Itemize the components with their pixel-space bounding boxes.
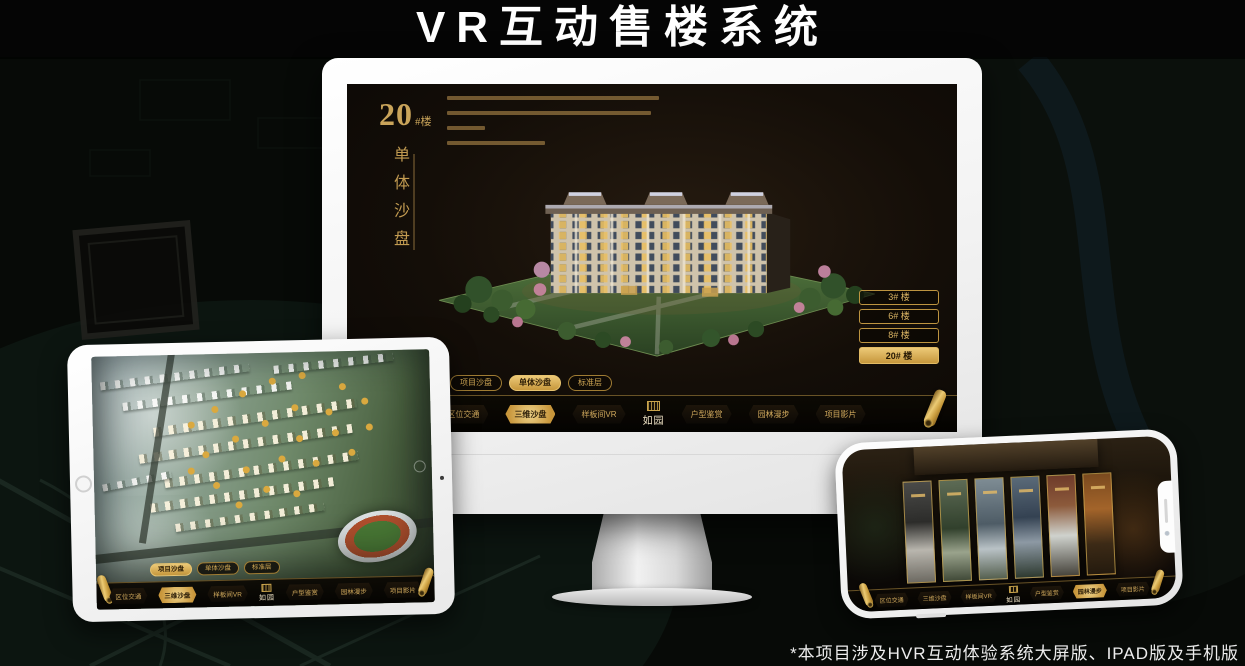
ipad-frame: 项目沙盘 单体沙盘 标准层 区位交通 三维沙盘 样板间VR 如园 户型鉴赏 园林… <box>67 337 455 623</box>
speaker-icon <box>1164 498 1168 522</box>
building-selector: 3# 楼 6# 楼 8# 楼 20# 楼 <box>859 290 939 364</box>
nav-3d-sandbox[interactable]: 三维沙盘 <box>917 590 952 606</box>
nav-floorplan-gallery[interactable]: 户型鉴赏 <box>286 584 324 601</box>
block-subtitle: 单体沙盘 <box>387 146 411 258</box>
building-button-3[interactable]: 3# 楼 <box>859 290 939 305</box>
front-camera-icon <box>440 475 444 479</box>
phone-device: 区位交通 三维沙盘 样板间VR 如园 户型鉴赏 园林漫步 项目影片 <box>834 428 1184 619</box>
nav-garden-walk[interactable]: 园林漫步 <box>1072 583 1107 599</box>
subtitle-divider <box>413 154 415 250</box>
scene-panel-card[interactable] <box>938 479 972 582</box>
nav-showroom-vr[interactable]: 样板间VR <box>207 585 248 602</box>
scroll-handle-right-icon[interactable] <box>922 388 947 428</box>
subtab-standard-floor[interactable]: 标准层 <box>568 375 612 391</box>
scene-panel-card[interactable] <box>902 480 936 583</box>
nav-3d-sandbox[interactable]: 三维沙盘 <box>158 586 196 603</box>
brand-logo: 如园 <box>1005 585 1021 604</box>
scene-panel-card[interactable] <box>1082 472 1116 575</box>
phone-notch <box>1157 481 1175 554</box>
nav-location-traffic[interactable]: 区位交通 <box>109 588 147 605</box>
scene-panel-card[interactable] <box>1010 476 1044 579</box>
scene-panels <box>902 472 1115 583</box>
nav-project-film[interactable]: 项目影片 <box>384 581 422 598</box>
brand-logo-text: 如园 <box>259 592 275 602</box>
subtab-project-sandbox[interactable]: 项目沙盘 <box>150 563 192 577</box>
brand-logo: 如园 <box>259 583 275 602</box>
scene-panel-card[interactable] <box>974 477 1008 580</box>
front-camera-icon <box>1164 530 1169 535</box>
poster: VR互动售楼系统 20#楼 单体沙盘 <box>0 0 1245 666</box>
home-button[interactable] <box>75 475 92 492</box>
phone-frame: 区位交通 三维沙盘 样板间VR 如园 户型鉴赏 园林漫步 项目影片 <box>834 428 1184 619</box>
sandbox-subtabs: 项目沙盘 单体沙盘 标准层 <box>450 375 612 391</box>
nav-floorplan-gallery[interactable]: 户型鉴赏 <box>1030 585 1065 601</box>
scene-panel-card[interactable] <box>1046 474 1080 577</box>
monitor-stand <box>592 512 712 596</box>
building-button-8[interactable]: 8# 楼 <box>859 328 939 343</box>
nav-garden-walk[interactable]: 园林漫步 <box>749 405 799 424</box>
phone-screen: 区位交通 三维沙盘 样板间VR 如园 户型鉴赏 园林漫步 项目影片 <box>841 436 1176 613</box>
ipad-screen: 项目沙盘 单体沙盘 标准层 区位交通 三维沙盘 样板间VR 如园 户型鉴赏 园林… <box>91 349 435 610</box>
subtab-standard-floor[interactable]: 标准层 <box>244 561 280 575</box>
nav-project-film[interactable]: 项目影片 <box>816 405 866 424</box>
building-button-6[interactable]: 6# 楼 <box>859 309 939 324</box>
ceiling-beam <box>914 439 1099 475</box>
description-text <box>447 96 659 156</box>
block-title: 20#楼 <box>379 96 432 133</box>
subtab-single-sandbox[interactable]: 单体沙盘 <box>197 562 239 576</box>
seal-icon <box>262 583 272 591</box>
building-button-20[interactable]: 20# 楼 <box>859 347 939 364</box>
nav-showroom-vr[interactable]: 样板间VR <box>572 405 625 424</box>
nav-3d-sandbox[interactable]: 三维沙盘 <box>505 405 555 424</box>
seal-icon <box>647 401 660 411</box>
monitor-stand-base <box>552 588 752 606</box>
nav-location-traffic[interactable]: 区位交通 <box>874 592 909 608</box>
block-number: 20 <box>379 96 413 132</box>
nav-project-film[interactable]: 项目影片 <box>1115 581 1150 597</box>
subtab-single-sandbox[interactable]: 单体沙盘 <box>509 375 561 391</box>
footnote: *本项目涉及HVR互动体验系统大屏版、IPAD版及手机版 <box>790 639 1239 664</box>
nav-showroom-vr[interactable]: 样板间VR <box>960 588 997 604</box>
brand-logo-text: 如园 <box>1006 593 1021 604</box>
subtab-project-sandbox[interactable]: 项目沙盘 <box>450 375 502 391</box>
seal-icon <box>1008 585 1017 592</box>
building-render <box>432 152 882 364</box>
brand-logo-text: 如园 <box>643 412 665 427</box>
nav-floorplan-gallery[interactable]: 户型鉴赏 <box>682 405 732 424</box>
wall-plaque <box>76 223 197 336</box>
nav-garden-walk[interactable]: 园林漫步 <box>335 582 373 599</box>
ipad-device: 项目沙盘 单体沙盘 标准层 区位交通 三维沙盘 样板间VR 如园 户型鉴赏 园林… <box>67 337 455 623</box>
brand-logo: 如园 <box>643 401 665 427</box>
block-unit: #楼 <box>415 116 432 128</box>
page-title: VR互动售楼系统 <box>0 0 1245 56</box>
